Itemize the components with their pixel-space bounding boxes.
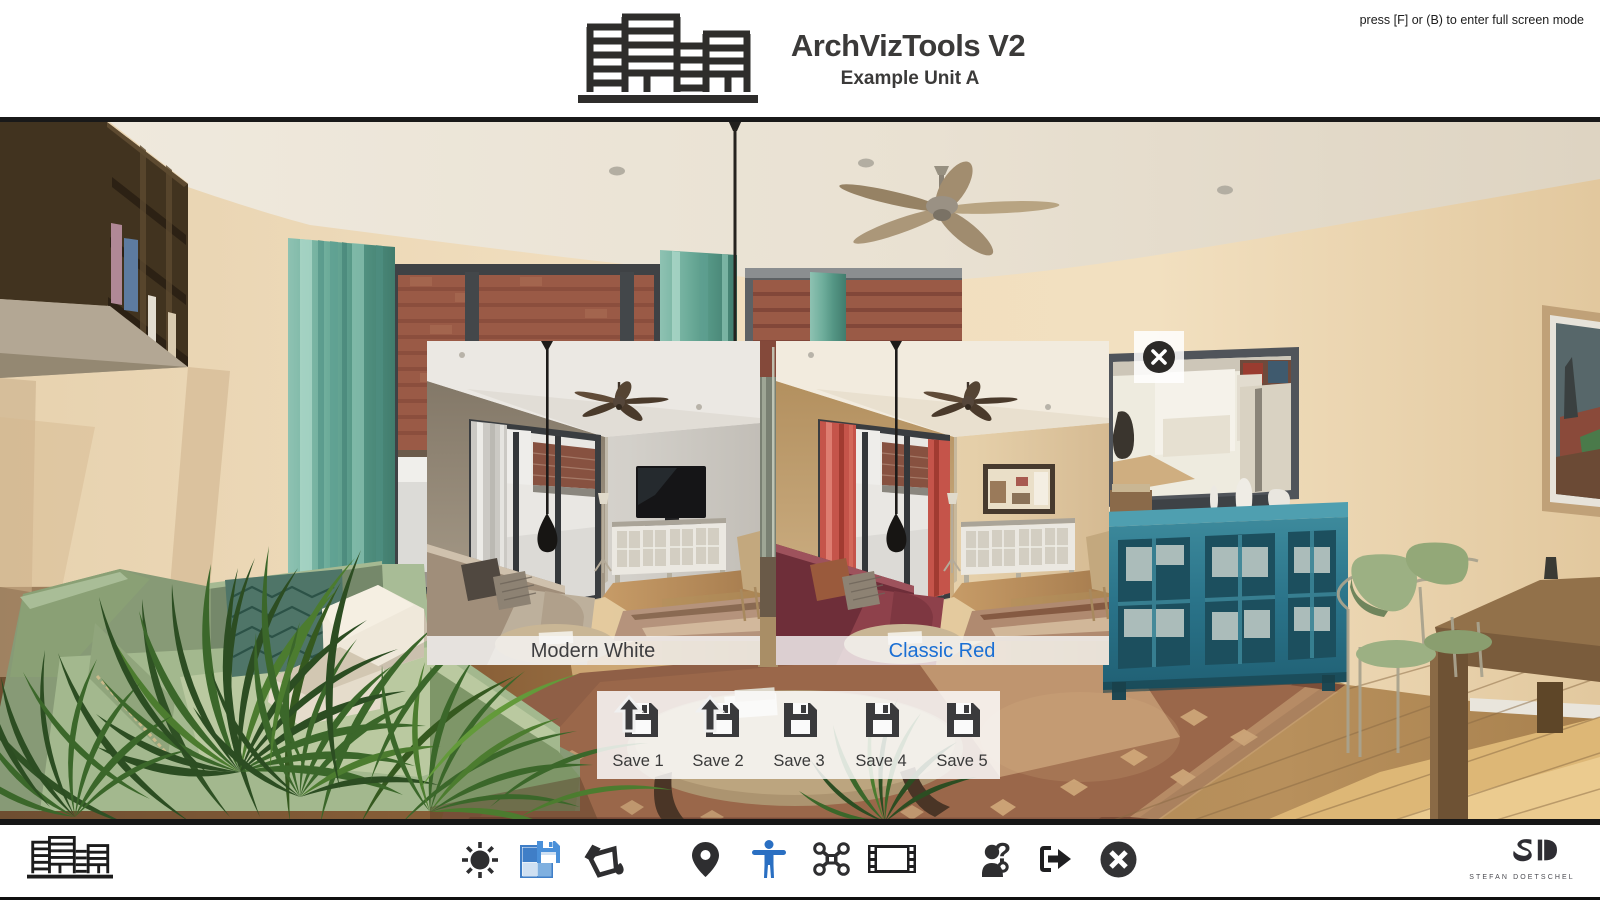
svg-text:Save 2: Save 2 [692, 752, 743, 770]
svg-text:Modern White: Modern White [531, 640, 656, 662]
svg-text:Save 4: Save 4 [855, 752, 906, 770]
svg-text:Save 3: Save 3 [773, 752, 824, 770]
svg-text:STEFAN DOETSCHEL: STEFAN DOETSCHEL [1469, 874, 1575, 881]
svg-text:Save 1: Save 1 [612, 752, 663, 770]
svg-text:Classic Red: Classic Red [889, 640, 996, 662]
svg-text:Save 5: Save 5 [936, 752, 987, 770]
